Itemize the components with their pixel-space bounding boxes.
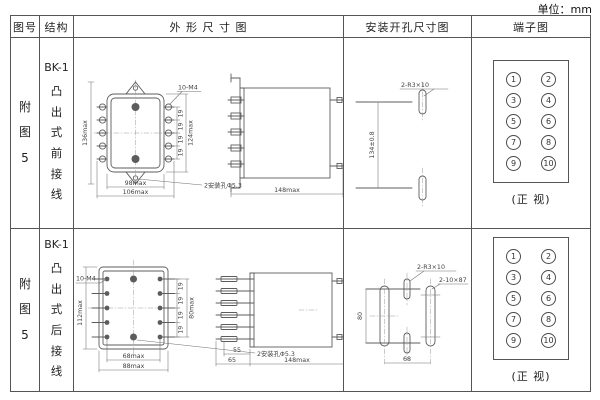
- dim-55: 55: [233, 347, 241, 354]
- dim-148max: 148max: [284, 357, 310, 364]
- row2-terminal-cell: 1 3 5 7 9 2 4 6 8 10 (正 视): [472, 229, 590, 391]
- terminal-3: 3: [506, 93, 521, 108]
- terminal-7: 7: [506, 135, 521, 150]
- front-view-drawing: 10-M4 112max 19 19 19 19 80max 68max 88m…: [76, 260, 295, 372]
- terminal-caption: (正 视): [511, 368, 550, 384]
- label-slot: 2-R3×10: [401, 82, 429, 89]
- row1-install-drawing: 2-R3×10 134±0.8: [344, 38, 472, 229]
- dim-136max: 136max: [82, 120, 89, 146]
- terminal-8: 8: [541, 312, 556, 327]
- dim-pitch-4: 19: [178, 326, 185, 334]
- row1-fig-no: 附图5: [11, 38, 40, 229]
- terminal-4: 4: [541, 93, 556, 108]
- terminal-2: 2: [541, 249, 556, 264]
- terminal-6: 6: [541, 114, 556, 129]
- label-10-m4: 10-M4: [178, 85, 198, 92]
- terminal-2: 2: [541, 72, 556, 87]
- dim-68: 68: [403, 356, 411, 363]
- row1-install-cell: 2-R3×10 134±0.8: [344, 38, 472, 229]
- structure-type: 凸出式前接线: [48, 81, 64, 205]
- terminal-3: 3: [506, 270, 521, 285]
- row2-outline-drawing: 10-M4 112max 19 19 19 19 80max 68max 88m…: [74, 229, 344, 391]
- dim-pitch-4: 19: [178, 148, 185, 156]
- dim-124max: 124max: [188, 120, 195, 146]
- header-terminal: 端子图: [472, 16, 590, 38]
- structure-type: 凸出式后接线: [48, 258, 64, 382]
- dim-pitch-1: 19: [178, 109, 185, 117]
- row2-install-drawing: 2-R3×10 2-10×87 80 68: [344, 229, 472, 391]
- page: 单位：mm 图号 结构 外 形 尺 寸 图 安装开孔尺寸图 端子图 附图5 BK…: [0, 0, 600, 400]
- structure-model: BK-1: [44, 61, 69, 74]
- row1-structure: BK-1 凸出式前接线: [40, 38, 74, 229]
- terminal-10: 10: [541, 156, 556, 171]
- terminal-9: 9: [506, 156, 521, 171]
- terminal-5: 5: [506, 291, 521, 306]
- dim-68max: 68max: [123, 353, 145, 360]
- row1-outline-drawing: 136max 19 19 19 19 124max 10-M4 98max 10…: [74, 38, 344, 229]
- dim-pitch-3: 19: [178, 311, 185, 319]
- dim-pitch-2: 19: [178, 297, 185, 305]
- terminal-caption: (正 视): [511, 191, 550, 207]
- header-fig-no: 图号: [11, 16, 40, 38]
- label-10-m4: 10-M4: [76, 276, 96, 283]
- dim-148max: 148max: [274, 187, 300, 194]
- dim-80: 80: [357, 312, 364, 320]
- row1-outline-cell: 136max 19 19 19 19 124max 10-M4 98max 10…: [74, 38, 344, 229]
- row2-install-cell: 2-R3×10 2-10×87 80 68: [344, 229, 472, 391]
- install-hole-drawing: 2-R3×10 2-10×87 80 68: [357, 264, 468, 365]
- front-view-drawing: 136max 19 19 19 19 124max 10-M4 98max 10…: [82, 80, 242, 198]
- dim-65: 65: [228, 357, 236, 364]
- dim-106max: 106max: [123, 189, 149, 196]
- row2-outline-cell: 10-M4 112max 19 19 19 19 80max 68max 88m…: [74, 229, 344, 391]
- terminal-1: 1: [506, 249, 521, 264]
- dim-pitch-2: 19: [178, 122, 185, 130]
- dim-98max: 98max: [125, 180, 147, 187]
- terminal-4: 4: [541, 270, 556, 285]
- terminal-panel: 1 3 5 7 9 2 4 6 8 10 (正 视): [493, 237, 569, 384]
- side-view-drawing: 148max: [228, 74, 343, 197]
- header-install: 安装开孔尺寸图: [344, 16, 472, 38]
- row2-fig-no: 附图5: [11, 229, 40, 391]
- dim-112max: 112max: [77, 300, 84, 326]
- spec-table: 图号 结构 外 形 尺 寸 图 安装开孔尺寸图 端子图 附图5 BK-1 凸出式…: [10, 15, 591, 392]
- install-hole-drawing: 2-R3×10 134±0.8: [356, 82, 448, 208]
- dim-80max: 80max: [189, 297, 196, 319]
- terminal-box: 1 3 5 7 9 2 4 6 8 10: [493, 60, 569, 183]
- fig-no-text: 附图5: [17, 272, 33, 348]
- terminal-6: 6: [541, 291, 556, 306]
- terminal-5: 5: [506, 114, 521, 129]
- dim-pitch-1: 19: [178, 282, 185, 290]
- terminal-10: 10: [541, 333, 556, 348]
- label-slot-small: 2-R3×10: [417, 264, 445, 271]
- label-slot-big: 2-10×87: [439, 277, 467, 284]
- terminal-8: 8: [541, 135, 556, 150]
- terminal-panel: 1 3 5 7 9 2 4 6 8 10 (正 视): [493, 60, 569, 207]
- fig-no-text: 附图5: [17, 95, 33, 171]
- structure-model: BK-1: [44, 238, 69, 251]
- terminal-9: 9: [506, 333, 521, 348]
- row1-terminal-cell: 1 3 5 7 9 2 4 6 8 10 (正 视): [472, 38, 590, 229]
- row2-structure: BK-1 凸出式后接线: [40, 229, 74, 391]
- terminal-1: 1: [506, 72, 521, 87]
- header-structure: 结构: [40, 16, 74, 38]
- dim-134: 134±0.8: [369, 131, 376, 158]
- dim-88max: 88max: [123, 363, 145, 370]
- header-outline: 外 形 尺 寸 图: [74, 16, 344, 38]
- terminal-7: 7: [506, 312, 521, 327]
- terminal-box: 1 3 5 7 9 2 4 6 8 10: [493, 237, 569, 360]
- dim-pitch-3: 19: [178, 135, 185, 143]
